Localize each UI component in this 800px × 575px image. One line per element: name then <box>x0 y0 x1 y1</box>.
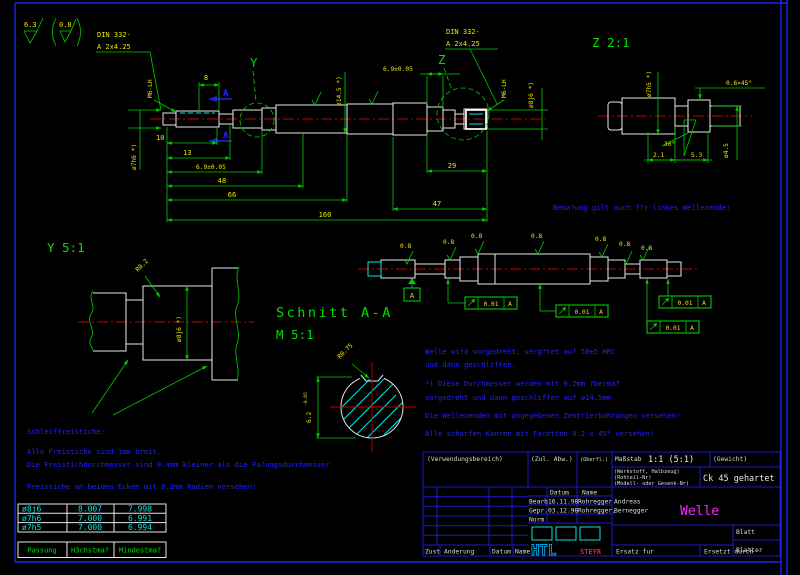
svg-text:ø14.5 *): ø14.5 *) <box>336 76 343 106</box>
datum-symbol: A <box>404 278 420 301</box>
section-scale: M 5:1 <box>276 327 314 342</box>
main-view: Y Z DIN 332- A 2x4.25 DIN 332- A 2x4.25 … <box>96 28 548 222</box>
bearb-date: 16.11.98 <box>548 499 579 506</box>
detail-label-y: Y <box>250 55 258 70</box>
material-value: Ck 45 gehartet <box>703 474 775 484</box>
runout-frame: 0.01 A <box>647 321 699 333</box>
steyr-text: STEYR <box>580 548 602 556</box>
field-ersetzt-durch: Ersetzt durch <box>704 549 753 556</box>
svg-text:160: 160 <box>319 211 332 219</box>
svg-text:ø8j6 *): ø8j6 *) <box>528 82 535 108</box>
htl-letters: HTL <box>531 543 556 559</box>
bearb-name: Rohregger <box>578 499 612 506</box>
fit-cell: 6.994 <box>128 523 152 532</box>
svg-text:48: 48 <box>218 177 226 185</box>
gepr-firstname: Bernegger <box>614 508 648 515</box>
svg-text:A: A <box>223 89 229 99</box>
htl-logo: HTL STEYR <box>531 527 602 559</box>
svg-text:10: 10 <box>156 134 164 142</box>
svg-text:A: A <box>702 300 706 307</box>
note-line: Alle Freistiche sind 1mm breit. <box>27 447 161 456</box>
surface-finish-symbols: 6.3 0.8 <box>24 18 81 46</box>
section-title: Schnitt A-A <box>276 305 393 321</box>
cad-drawing-sheet: 6.3 0.8 Y Z DIN 332- A 2x4. <box>0 0 800 575</box>
fit-cell: 7.000 <box>78 523 102 532</box>
din-callout-right: DIN 332- A 2x4.25 <box>445 28 498 104</box>
note-line: Schleiffreistiche: <box>27 427 105 436</box>
fit-cell: ø7h5 <box>22 523 41 532</box>
radius-dim: R0.2 <box>134 258 150 274</box>
grinding-view: Bema?ung gilt auch f?r linkes Wellenende… <box>358 203 730 333</box>
svg-text:0.8: 0.8 <box>400 243 411 250</box>
center-hole-detail <box>466 110 486 129</box>
row-gepr: Gepr. <box>529 508 548 515</box>
groove-outline <box>93 268 238 380</box>
svg-text:-0.05: -0.05 <box>303 392 309 406</box>
svg-text:6.9±0.05: 6.9±0.05 <box>383 66 413 73</box>
svg-text:0.01: 0.01 <box>484 301 499 308</box>
svg-text:A: A <box>223 131 229 141</box>
tolerance-frames: 0.01 A 0.01 A 0.01 A 0.01 A <box>448 279 711 333</box>
drawing-canvas: 6.3 0.8 Y Z DIN 332- A 2x4. <box>0 0 800 575</box>
col-zust: Zust <box>425 549 440 556</box>
fit-footer: Mindestma? <box>119 547 161 555</box>
field-ersatz-fuer: Ersatz fur <box>616 549 654 556</box>
dimensions: 8 10 13 6.9±0.05 48 66 160 47 29 6.9±0.0… <box>128 66 548 222</box>
fit-cell: ø8j6 <box>22 505 41 514</box>
svg-text:A 2x4.25: A 2x4.25 <box>446 40 480 48</box>
note-line: Die Freistichdurchmesser sind 0.4mm klei… <box>27 460 331 469</box>
fit-cell: 7.998 <box>128 505 152 514</box>
svg-text:0.8: 0.8 <box>531 233 542 240</box>
detail-y-view: Y 5:1 ø8j6 *) R0.2 <box>47 240 254 415</box>
notes-center: Welle wird vorgedreht, verg?tet auf 50±5… <box>425 347 680 438</box>
svg-text:A: A <box>599 309 603 316</box>
svg-text:M6-LH: M6-LH <box>147 79 154 98</box>
svg-text:ø7h5 *): ø7h5 *) <box>646 71 653 97</box>
mirror-note: Bema?ung gilt auch f?r linkes Wellenende… <box>553 203 730 212</box>
svg-text:13: 13 <box>183 149 191 157</box>
svg-text:66: 66 <box>228 191 236 199</box>
break-line <box>236 267 239 381</box>
fit-cell: 7.000 <box>78 514 102 523</box>
diameter-dim: ø8j6 *) <box>176 316 183 342</box>
runout-frame: 0.01 A <box>556 305 608 317</box>
break-line <box>90 291 94 352</box>
note-line: und dann geschliffen. <box>425 360 516 369</box>
svg-text:29: 29 <box>448 162 456 170</box>
field-modell: (Modell- oder Gesenk-Nr) <box>614 481 689 487</box>
note-line: Die Wellenenden mit angegebenen Zentrier… <box>425 411 680 420</box>
note-line: vorgedreht und dann geschliffen auf ø14.… <box>425 393 611 402</box>
col-datum: Datum <box>550 490 569 497</box>
col-aenderung: Anderung <box>444 549 475 556</box>
gepr-date: 03.12.98 <box>548 508 579 515</box>
col-datum2: Datum <box>492 549 511 556</box>
fit-cell: 8.007 <box>78 505 102 514</box>
roughness-value-alt: 0.8 <box>59 21 72 29</box>
fit-cell: 6.991 <box>128 514 152 523</box>
field-massstab-label: Maßstab <box>615 456 642 463</box>
fit-footer: Passung <box>27 547 57 555</box>
svg-text:0.8: 0.8 <box>619 241 630 248</box>
field-oberfl: (Oberfl.) <box>580 457 608 463</box>
svg-text:A: A <box>508 301 512 308</box>
svg-text:ø4.5: ø4.5 <box>723 143 730 158</box>
svg-text:8: 8 <box>204 74 208 82</box>
field-verwendung: (Verwendungsbereich) <box>427 456 503 463</box>
note-line: Alle scharfen Kanten mit Facetten 0.2 x … <box>425 429 654 438</box>
svg-text:0.01: 0.01 <box>666 325 681 332</box>
svg-text:0.8: 0.8 <box>471 233 482 240</box>
roughness-value: 6.3 <box>24 21 37 29</box>
section-a-a: Schnitt A-A M 5:1 6.2 -0.05 R0.75 <box>276 305 438 475</box>
field-blatt: Blatt <box>736 529 755 536</box>
fit-cell: ø7h6 <box>22 514 41 523</box>
svg-text:A: A <box>690 325 694 332</box>
row-norm: Norm <box>529 517 544 524</box>
runout-frame: 0.01 A <box>659 296 711 308</box>
svg-text:47: 47 <box>433 200 441 208</box>
svg-text:ø7h6 *): ø7h6 *) <box>131 144 138 170</box>
gepr-name: Rohregger, <box>578 508 616 515</box>
field-zul-abw: (Zul. Abw.) <box>531 456 573 463</box>
section-cut-arrows: A A <box>209 89 232 144</box>
note-line: Welle wird vorgedreht, verg?tet auf 50±5… <box>425 347 615 356</box>
view-title: Z 2:1 <box>592 35 630 50</box>
field-massstab-value: 1:1 (5:1) <box>648 455 694 465</box>
svg-text:0.8: 0.8 <box>595 236 606 243</box>
svg-text:R0.75: R0.75 <box>336 342 354 360</box>
detail-label-z: Z <box>438 52 446 67</box>
title-block: (Verwendungsbereich) (Zul. Abw.) (Oberfl… <box>423 452 780 559</box>
fit-table: ø8j6 8.007 7.998 ø7h6 7.000 6.991 ø7h5 7… <box>18 504 166 558</box>
svg-text:A: A <box>410 292 415 300</box>
note-arrow <box>92 360 128 413</box>
detail-circle-y <box>240 103 274 137</box>
view-title: Y 5:1 <box>47 240 85 255</box>
note-line: Freistiche an beiden Ecken mit 0.2mm Rad… <box>27 482 256 491</box>
svg-text:DIN 332-: DIN 332- <box>446 28 480 36</box>
field-gewicht: (Gewicht) <box>713 456 747 463</box>
notes-left: Schleiffreistiche: Alle Freistiche sind … <box>27 427 331 491</box>
roughness-marks: 0.8 0.8 0.8 0.8 0.8 0.8 0.8 <box>400 233 652 264</box>
dimensions: ø7h5 *) 0.6×45° 30° 2.1 5.3 ø4.5 <box>644 71 765 163</box>
svg-text:0.01: 0.01 <box>575 309 590 316</box>
svg-text:M6-LH: M6-LH <box>501 79 508 98</box>
runout-frame: 0.01 A <box>465 297 517 309</box>
svg-text:6.9±0.05: 6.9±0.05 <box>196 164 226 171</box>
svg-text:6.2: 6.2 <box>306 412 313 423</box>
svg-text:0.01: 0.01 <box>678 300 693 307</box>
fit-footer: H3chstma? <box>71 547 109 555</box>
svg-text:0.8: 0.8 <box>641 245 652 252</box>
col-name: Name <box>582 490 597 497</box>
svg-text:0.8: 0.8 <box>443 239 454 246</box>
svg-text:A 2x4.25: A 2x4.25 <box>97 43 131 51</box>
note-line: *) Diese Durchmesser werden mit 0.2mm ?b… <box>425 379 620 388</box>
drawing-title: Welle <box>680 504 719 519</box>
svg-text:DIN 332-: DIN 332- <box>97 31 131 39</box>
bearb-firstname: Andreas <box>614 499 641 506</box>
svg-text:5.3: 5.3 <box>691 152 702 159</box>
svg-text:2.1: 2.1 <box>653 152 664 159</box>
svg-text:0.6×45°: 0.6×45° <box>726 79 752 87</box>
note-arrow <box>113 366 207 415</box>
detail-z-view: Z 2:1 ø7h5 *) 0.6×45° 30° 2.1 5.3 ø4.5 <box>592 35 765 163</box>
col-name2: Name <box>515 549 530 556</box>
chamfer-detail-triangle <box>684 120 696 156</box>
